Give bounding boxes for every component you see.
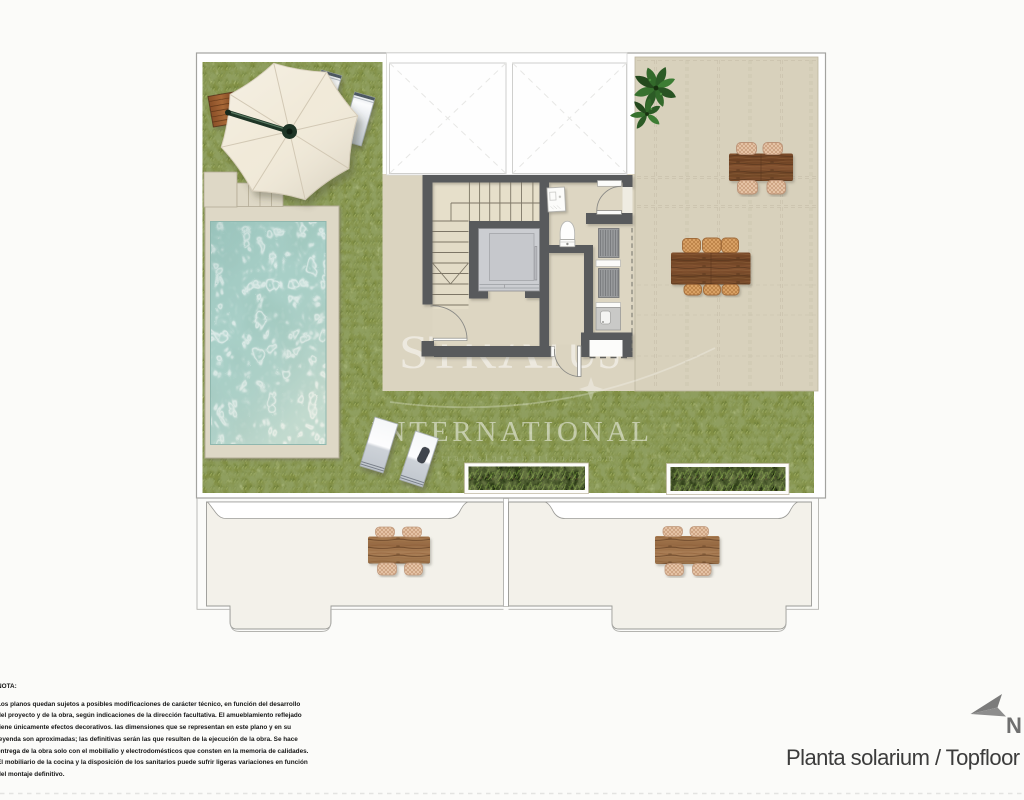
- svg-text:N: N: [1006, 713, 1022, 738]
- svg-text:StratusInternational.com: StratusInternational.com: [432, 454, 617, 464]
